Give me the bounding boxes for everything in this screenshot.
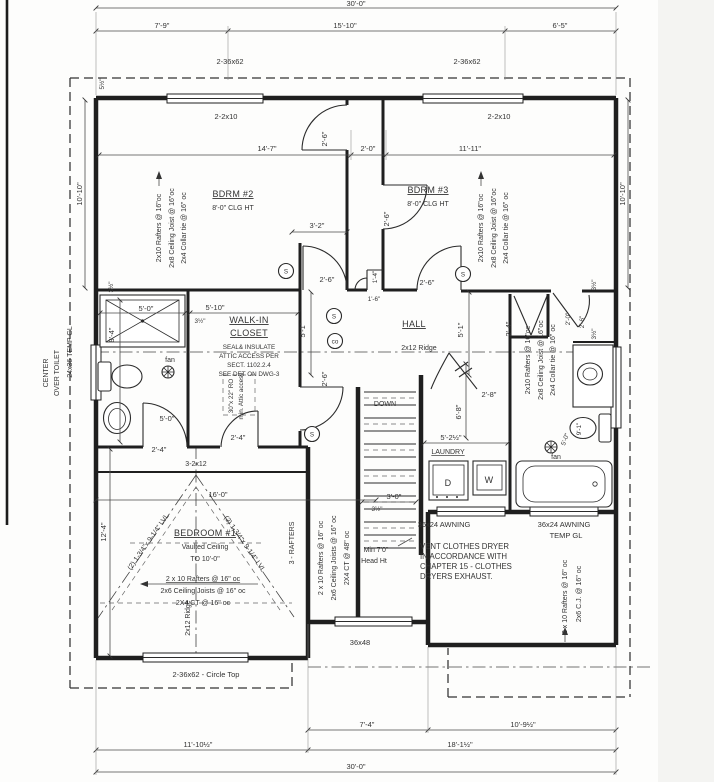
framing-note: 2x10 Rafters @ 16"oc	[156, 193, 163, 262]
window-top-right	[423, 94, 523, 103]
roof-overhang-outline	[70, 78, 630, 697]
door-bath-left	[143, 403, 187, 447]
dim: 5'-1"	[298, 322, 307, 337]
framing-note: 2 x 10 Rafters @ 16" oc	[318, 520, 325, 595]
window-label: 36x24 AWNING	[418, 520, 471, 529]
dim: 15'-10"	[333, 21, 357, 30]
dim: 2'-6"	[382, 211, 391, 226]
vent-note: VENT CLOTHES DRYER	[420, 542, 509, 551]
dim: 7'-9"	[155, 21, 170, 30]
framing-note: 2x8 Ceiling Joist @ 16"oc	[491, 188, 498, 268]
window-label: 2-36x62	[216, 57, 243, 66]
attic-note: SECT. 1102.2.4	[227, 362, 271, 369]
dim: 2'-8"	[482, 390, 497, 399]
room-wic-2: CLOSET	[230, 328, 268, 338]
dim: 3½"	[590, 329, 598, 340]
dim: 18'-1½"	[447, 740, 473, 749]
floor-plan-sheet: S S S co S 30'-0" 7'-9" 15'-10" 6'-5" 14…	[0, 0, 714, 782]
dim: 5'-2½"	[440, 433, 462, 442]
framing-note: 2 x 10 Rafters @ 16" oc	[166, 576, 241, 583]
window-note: OVER TOILET	[54, 349, 61, 396]
dim: 11'-10½"	[184, 740, 213, 749]
dim: 2'-6"	[420, 278, 435, 287]
room-bedroom1-sub2: TO 10'-0"	[190, 556, 220, 563]
dim: 30'-0"	[346, 762, 365, 771]
fan-right-icon	[545, 441, 557, 453]
dim: 2'-6"	[579, 316, 586, 329]
header-label: 2-2x10	[488, 112, 511, 121]
dim: 11'-11"	[459, 144, 482, 153]
dryer-label: D	[445, 478, 452, 488]
room-bdrm3-clg: 8'-0" CLG HT	[407, 201, 449, 208]
attic-note: SEAL& INSULATE	[223, 344, 275, 351]
bathtub	[516, 461, 612, 507]
dim: 5'-0"	[160, 414, 175, 423]
vent-note: DRYERS EXHAUST.	[420, 572, 493, 581]
head-height-note: Head Ht	[361, 558, 387, 565]
head-height-note: Min 7'0"	[364, 547, 389, 554]
vanity-sink-right	[573, 345, 613, 407]
window-label: 2-36x62	[453, 57, 480, 66]
dim: 1'-6"	[368, 296, 381, 303]
framing-note: 2x10 Rafters @ 16"oc	[478, 193, 485, 262]
room-bdrm3: BDRM #3	[407, 185, 448, 195]
window-label: 2-36x62 - Circle Top	[173, 670, 240, 679]
window-circle-top	[143, 653, 248, 662]
smoke-label: S	[310, 432, 314, 439]
framing-note: 2X4 CT @ 48" oc	[344, 530, 351, 585]
dim: 5½"	[98, 79, 106, 90]
framing-note: 2x6 Ceiling Joists @ 16" oc	[160, 588, 246, 595]
attic-note: SEE DET ON DWG-3	[219, 371, 280, 378]
dim: 3'-2"	[310, 221, 325, 230]
dim: 5'-1"	[456, 322, 465, 337]
dim: 2'-6"	[320, 131, 329, 146]
smoke-detectors: S S S co S	[279, 264, 471, 442]
fan-left-icon	[162, 366, 174, 378]
dim: 10'-9½"	[510, 720, 536, 729]
window-top-left	[167, 94, 263, 103]
dim: 5'-0"	[560, 432, 571, 446]
dim: 3½"	[372, 505, 383, 513]
window-label: 24x36 TEMP GL	[67, 326, 74, 378]
attic-note: ATTIC ACCESS PER	[219, 353, 279, 360]
dim: 5'-0"	[139, 304, 154, 313]
door-bedroom1	[300, 387, 343, 430]
window-awning-right	[530, 507, 598, 516]
dim: 2'-4"	[231, 433, 246, 442]
framing-note: 3 - RAFTERS	[289, 521, 296, 564]
dim: 3½"	[195, 317, 206, 325]
room-bedroom1-sub1: Vaulted Ceiling	[182, 544, 229, 551]
stairs	[364, 392, 416, 548]
dim-overall-top: 30'-0"	[346, 0, 365, 8]
window-note: CENTER	[43, 359, 50, 388]
beam-label: 3-2x12	[185, 461, 207, 468]
fan-left-label: fan	[165, 357, 175, 364]
door-laundry	[431, 353, 477, 389]
framing-note: 2x4 Collar tie @ 16" oc	[503, 192, 510, 264]
dim: 9'-1"	[576, 423, 583, 436]
lvl-label: (2) 1-3/4"x 9-1/4" LVL	[127, 513, 171, 572]
vent-note: CHAPTER 15 - CLOTHES	[420, 562, 512, 571]
dim: 6'-5"	[553, 21, 568, 30]
window-36x48	[335, 617, 412, 626]
room-hall: HALL	[402, 319, 426, 329]
dim: 7'-4"	[360, 720, 375, 729]
dim: 2'-4"	[504, 321, 513, 336]
dim: 2'-6"	[320, 371, 329, 386]
framing-note: 2x6 Ceiling Joists @ 16" oc	[331, 515, 338, 601]
window-awning-left	[437, 507, 505, 516]
smoke-label: S	[332, 314, 336, 321]
dim: 2'-0"	[565, 313, 572, 326]
framing-note: 2x4 Collar tie @ 16" oc	[181, 192, 188, 264]
dim: 16'-0"	[208, 490, 227, 499]
ridge-label: 2x12 Ridge	[401, 345, 437, 352]
dim: 12'-4"	[99, 522, 108, 541]
vent-note: IN ACCORDANCE WITH	[420, 552, 507, 561]
dim: 3½"	[590, 280, 598, 291]
door-niche	[355, 278, 367, 290]
attic-ro-note: 30"x 22" RO	[228, 379, 235, 414]
floor-plan-drawing: S S S co S 30'-0" 7'-9" 15'-10" 6'-5" 14…	[0, 0, 714, 782]
fan-right-label: fan	[551, 454, 561, 461]
stairs-down-label: DOWN	[374, 401, 396, 408]
framing-note: 2x10 Rafters @ 16"oc	[525, 325, 532, 394]
dim: 3½"	[107, 282, 115, 293]
co-detector-label: co	[332, 339, 339, 346]
dim: 10'-10"	[75, 182, 84, 206]
framing-note: 2x4 Collar tie @ 16" oc	[550, 324, 557, 396]
dim: 8'-4"	[107, 327, 116, 342]
attic-ro-note: min. Attic access	[238, 373, 245, 420]
dim: 2'-0"	[361, 144, 376, 153]
framing-note: 2X4 CT @ 16" oc	[176, 600, 231, 607]
dim: 14'-7"	[257, 144, 276, 153]
doors	[143, 105, 589, 447]
window-label: 36x48	[350, 638, 370, 647]
dim: 2'-6"	[320, 275, 335, 284]
smoke-label: S	[284, 269, 288, 276]
sink-left	[104, 403, 131, 434]
window-label: 36x24 AWNING	[538, 520, 591, 529]
room-bdrm2-clg: 8'-0" CLG HT	[212, 205, 254, 212]
lvl-label: (2) 1-3/4"x 9-1/4" LVL	[222, 515, 266, 574]
dim: 3'-0"	[387, 492, 402, 501]
dim: 6'-8"	[454, 404, 463, 419]
dim: 10'-10"	[618, 182, 627, 206]
dim: 5'-10"	[205, 303, 224, 312]
room-laundry: LAUNDRY	[431, 449, 465, 456]
room-bedroom1: BEDROOM #1	[174, 528, 236, 538]
window-label: TEMP GL	[550, 531, 583, 540]
room-wic-1: WALK-IN	[229, 315, 268, 325]
framing-note: 2 x 10 Rafters @ 16" oc	[562, 559, 569, 634]
dim: 2'-4"	[152, 445, 167, 454]
framing-note: 2x6 C.J. @ 16" oc	[576, 565, 583, 622]
dim: 1'-4"	[372, 271, 379, 284]
washer-label: W	[485, 475, 494, 485]
header-label: 2-2x10	[215, 112, 238, 121]
smoke-label: S	[461, 272, 465, 279]
framing-note: 2x8 Ceiling Joist @ 16"oc	[538, 320, 545, 400]
room-bdrm2: BDRM #2	[212, 189, 253, 199]
framing-note: 2x8 Ceiling Joist @ 16"oc	[169, 188, 176, 268]
